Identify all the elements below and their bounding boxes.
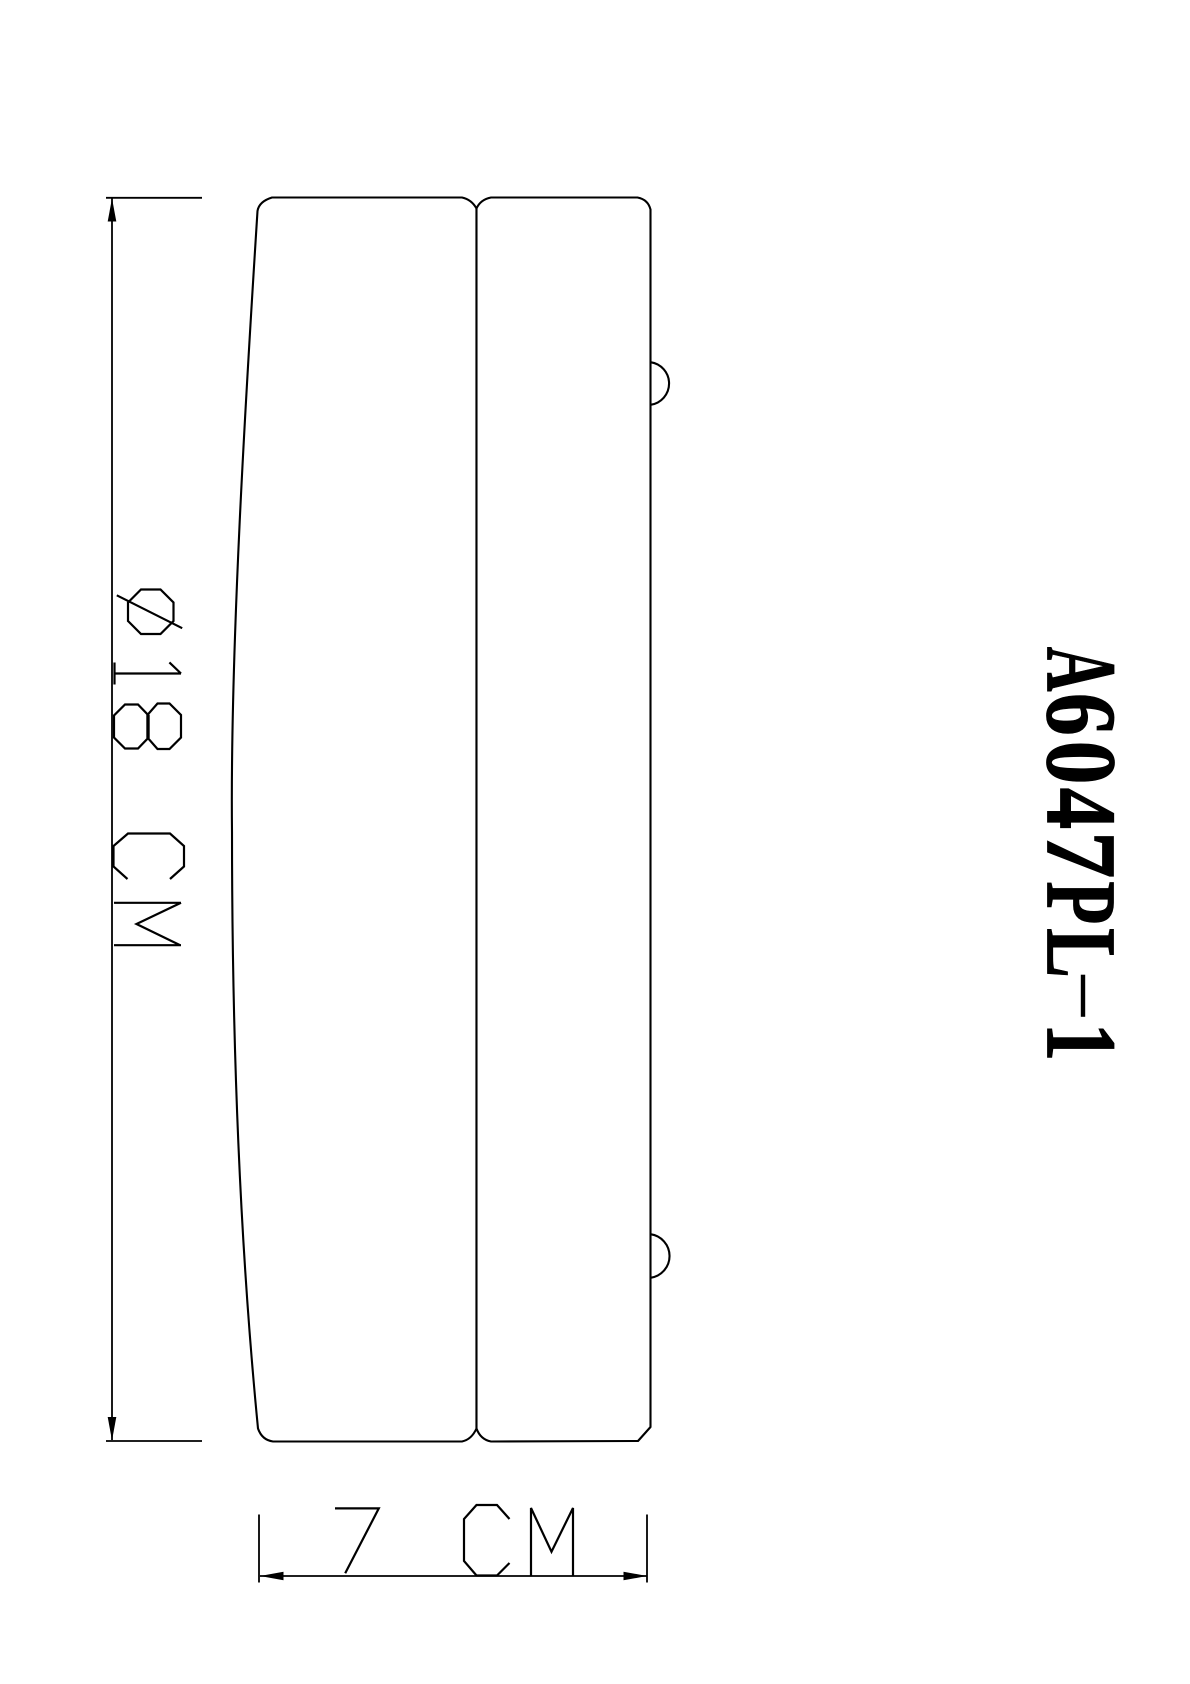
svg-text:1: 1 — [1025, 1023, 1137, 1062]
svg-text:0: 0 — [1025, 741, 1138, 785]
svg-text:P: P — [1025, 881, 1137, 924]
svg-text:7: 7 — [1025, 831, 1136, 878]
svg-text:A: A — [1025, 647, 1137, 692]
svg-text:4: 4 — [1025, 788, 1137, 830]
svg-text:6: 6 — [1025, 693, 1137, 736]
svg-text:L: L — [1025, 928, 1136, 978]
